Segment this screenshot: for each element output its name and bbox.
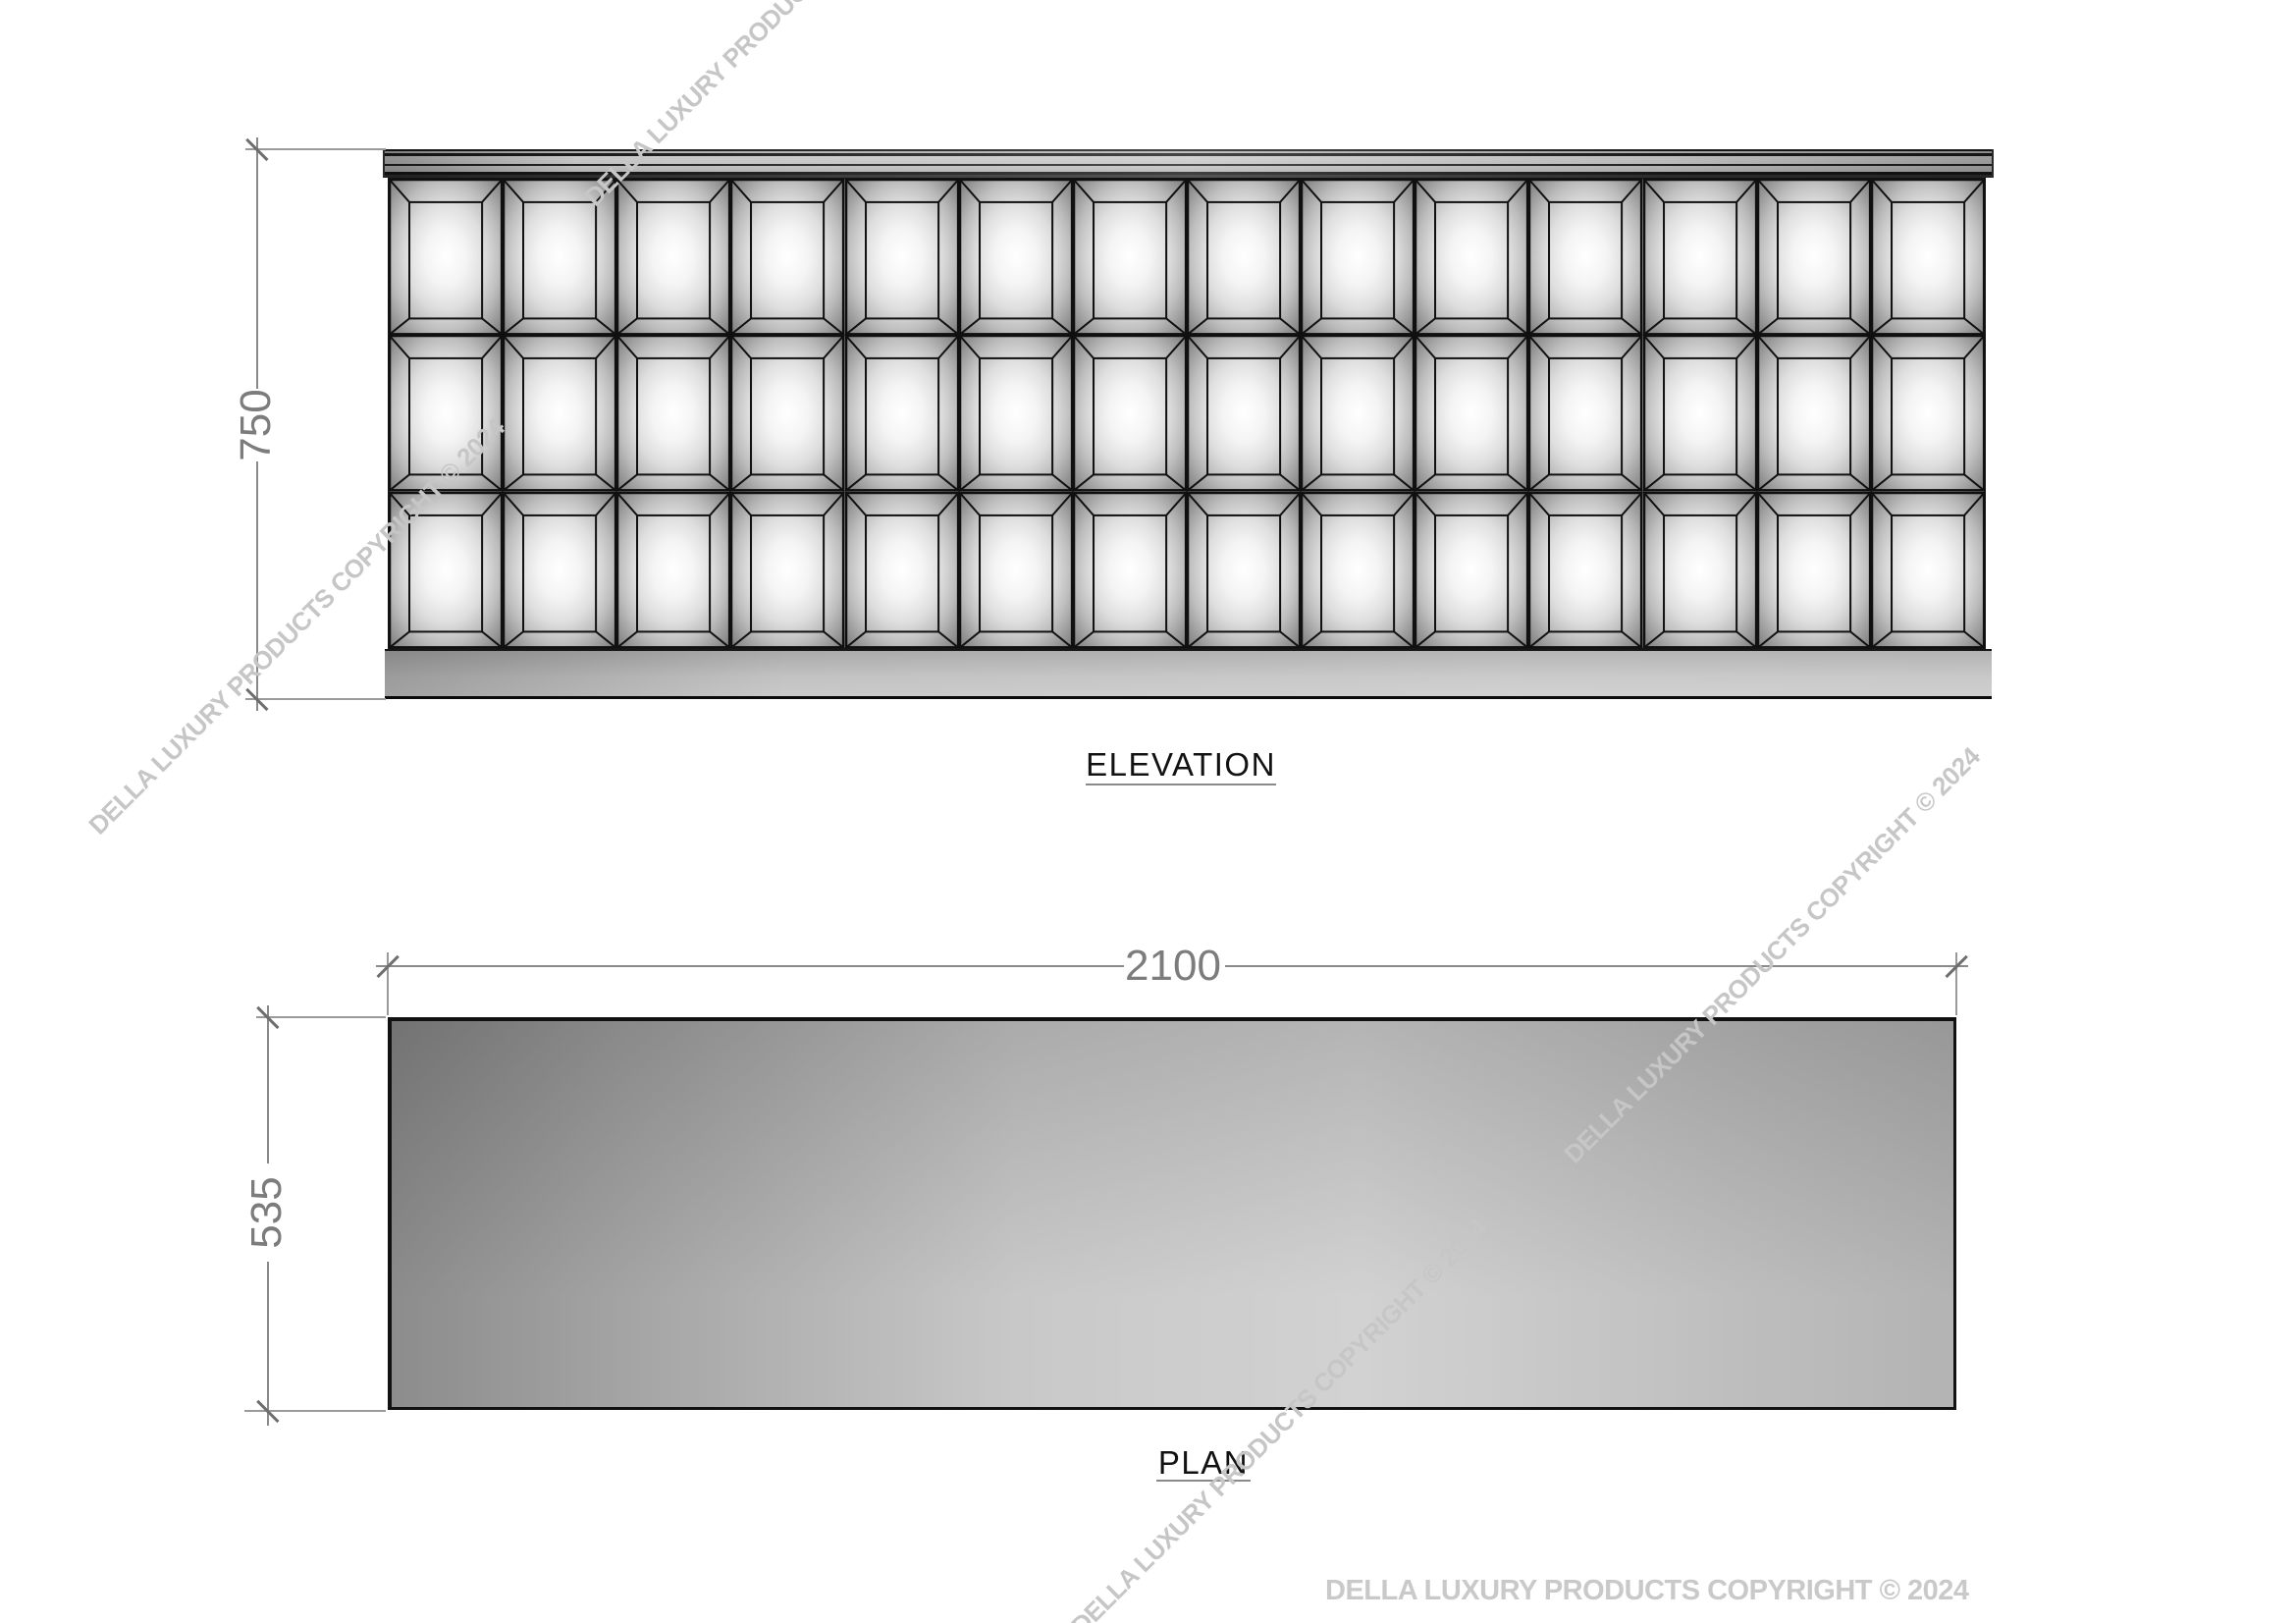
watermark-footer: DELLA LUXURY PRODUCTS COPYRIGHT © 2024 bbox=[1325, 1575, 1969, 1607]
panel-cell bbox=[1301, 335, 1415, 491]
panel-cell bbox=[1301, 492, 1415, 648]
height-dimension-label: 750 bbox=[235, 389, 278, 460]
dimension-line bbox=[1225, 965, 1968, 967]
panel-cell bbox=[1871, 492, 1985, 648]
extension-line-top bbox=[245, 148, 386, 150]
panel-cell bbox=[1528, 335, 1642, 491]
panel-cell bbox=[1415, 179, 1528, 335]
drawing-sheet: 750 ELEVATION 2100 535 PLAN DELLA LUXURY… bbox=[0, 0, 2296, 1623]
panel-cell bbox=[1187, 492, 1301, 648]
panel-cell bbox=[389, 179, 503, 335]
panel-cell bbox=[1643, 335, 1757, 491]
elevation-title-underline bbox=[1086, 784, 1276, 785]
panel-cell bbox=[1187, 335, 1301, 491]
panel-cell bbox=[1415, 335, 1528, 491]
panel-cell bbox=[1301, 179, 1415, 335]
panel-cell bbox=[1757, 179, 1871, 335]
panel-cell bbox=[1871, 335, 1985, 491]
panel-cell bbox=[616, 179, 730, 335]
panel-cell bbox=[845, 335, 959, 491]
panel-cell bbox=[959, 179, 1073, 335]
extension-line-top bbox=[256, 1016, 386, 1018]
panel-cell bbox=[503, 492, 616, 648]
panel-cell bbox=[730, 335, 844, 491]
panel-cell bbox=[1073, 179, 1187, 335]
panel-cell bbox=[1757, 492, 1871, 648]
extension-line-left bbox=[387, 952, 389, 1015]
panel-cell bbox=[1643, 492, 1757, 648]
depth-dimension-label: 535 bbox=[245, 1176, 289, 1248]
panel-cell bbox=[616, 492, 730, 648]
panel-cell bbox=[845, 492, 959, 648]
panel-cell bbox=[730, 179, 844, 335]
panel-cell bbox=[1757, 335, 1871, 491]
dimension-line bbox=[267, 1262, 269, 1426]
extension-line-right bbox=[1955, 952, 1957, 1015]
panel-cell bbox=[1415, 492, 1528, 648]
panel-cell bbox=[959, 335, 1073, 491]
plan-top-view bbox=[388, 1017, 1956, 1410]
panel-cell bbox=[1871, 179, 1985, 335]
panel-cell bbox=[959, 492, 1073, 648]
panel-cell bbox=[845, 179, 959, 335]
panel-cell bbox=[1073, 492, 1187, 648]
width-dimension-label: 2100 bbox=[1125, 945, 1221, 988]
plinth-base bbox=[385, 649, 1992, 699]
panel-cell bbox=[1073, 335, 1187, 491]
panel-grid bbox=[388, 178, 1986, 649]
panel-cell bbox=[616, 335, 730, 491]
panel-cell bbox=[730, 492, 844, 648]
panel-cell bbox=[1187, 179, 1301, 335]
dimension-line bbox=[376, 965, 1124, 967]
panel-cell bbox=[1643, 179, 1757, 335]
dimension-line bbox=[256, 137, 258, 389]
panel-cell bbox=[1528, 179, 1642, 335]
elevation-title: ELEVATION bbox=[1086, 746, 1276, 784]
extension-line-bottom bbox=[245, 698, 386, 700]
dimension-line bbox=[267, 1005, 269, 1163]
panel-cell bbox=[1528, 492, 1642, 648]
panel-cell bbox=[503, 335, 616, 491]
